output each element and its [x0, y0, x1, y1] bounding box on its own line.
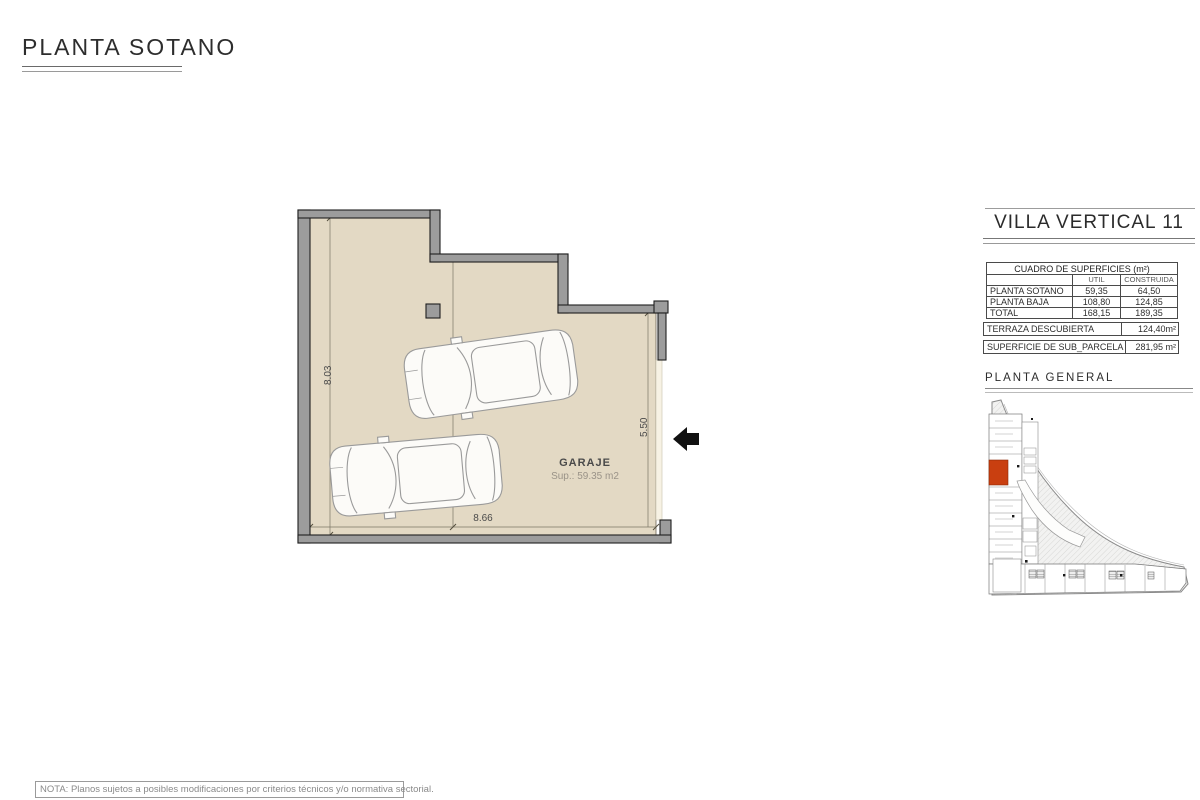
row-label: TOTAL	[987, 308, 1073, 319]
table-row: TOTAL 168,15 189,35	[987, 308, 1178, 319]
page-title: PLANTA SOTANO	[22, 34, 236, 61]
panel-top-rule	[985, 208, 1195, 209]
terraza-value: 124,40m²	[1121, 323, 1178, 335]
unit-strip-left	[989, 414, 1022, 564]
row-construida: 64,50	[1121, 286, 1178, 297]
site-plan-underline	[985, 388, 1193, 393]
site-plan	[985, 394, 1197, 606]
dim-label-left: 8.03	[323, 365, 334, 385]
title-underline	[22, 66, 182, 72]
entry-arrow-icon	[673, 427, 699, 451]
villa-title-underline	[983, 238, 1195, 244]
subparcela-box: SUPERFICIE DE SUB_PARCELA 11 281,95 m²	[983, 340, 1179, 354]
subparcela-label: SUPERFICIE DE SUB_PARCELA 11	[984, 341, 1125, 353]
terraza-label: TERRAZA DESCUBIERTA	[984, 323, 1121, 335]
site-plan-title: PLANTA GENERAL	[985, 372, 1114, 384]
col-header-construida: CONSTRUIDA	[1121, 275, 1178, 286]
surfaces-table: CUADRO DE SUPERFICIES (m²) UTIL CONSTRUI…	[986, 262, 1178, 319]
row-util: 108,80	[1073, 297, 1121, 308]
garage-door-opening	[656, 360, 662, 520]
villa-title: VILLA VERTICAL 11	[983, 212, 1195, 234]
surfaces-table-title: CUADRO DE SUPERFICIES (m²)	[987, 263, 1178, 275]
row-label: PLANTA SOTANO	[987, 286, 1073, 297]
row-label: PLANTA BAJA	[987, 297, 1073, 308]
row-util: 59,35	[1073, 286, 1121, 297]
terraza-box: TERRAZA DESCUBIERTA 124,40m²	[983, 322, 1179, 336]
room-area-label: Sup.: 59.35 m2	[551, 471, 619, 482]
drawing-sheet: PLANTA SOTANO 8.03 5.05	[0, 0, 1200, 800]
dim-label-bottom: 8.66	[473, 513, 493, 524]
column	[426, 304, 440, 318]
table-row: PLANTA BAJA 108,80 124,85	[987, 297, 1178, 308]
floor-plan: 8.03 5.05	[280, 190, 720, 570]
table-row: PLANTA SOTANO 59,35 64,50	[987, 286, 1178, 297]
corner-unit	[993, 559, 1021, 592]
col-header-util: UTIL	[1073, 275, 1121, 286]
empty-cell	[987, 275, 1073, 286]
room-label: GARAJE	[559, 457, 611, 469]
highlighted-unit	[989, 460, 1008, 485]
note-box: NOTA: Planos sujetos a posibles modifica…	[35, 781, 404, 798]
row-construida: 124,85	[1121, 297, 1178, 308]
row-util: 168,15	[1073, 308, 1121, 319]
dim-label-right: 5.50	[639, 417, 650, 437]
note-text: NOTA: Planos sujetos a posibles modifica…	[40, 784, 434, 795]
row-construida: 189,35	[1121, 308, 1178, 319]
subparcela-value: 281,95 m²	[1125, 341, 1178, 353]
